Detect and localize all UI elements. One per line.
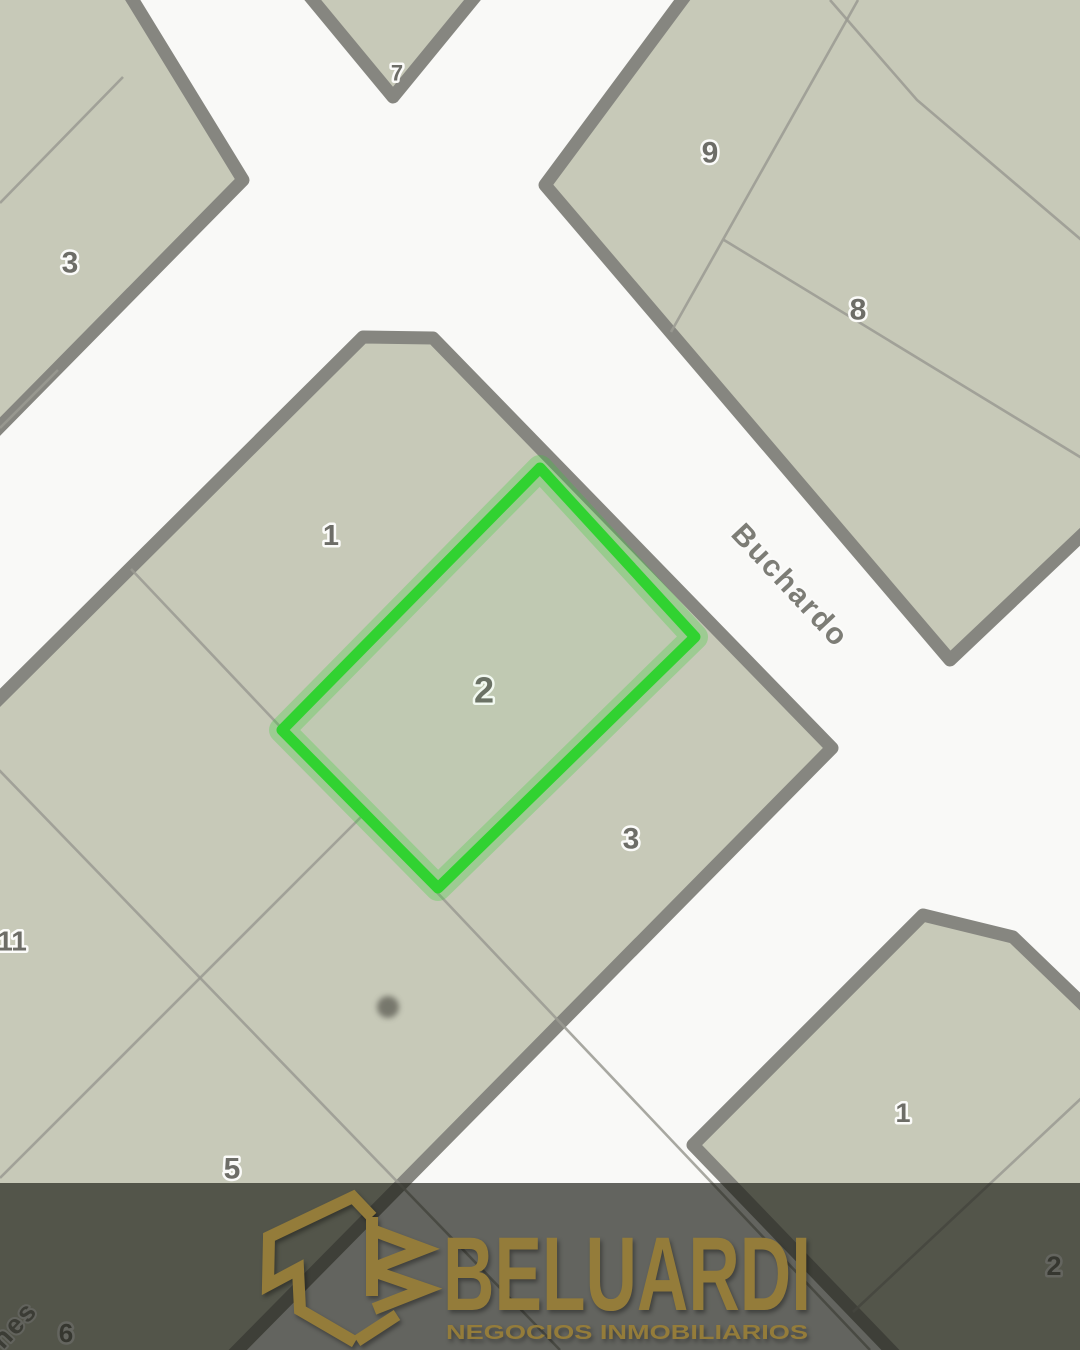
parcel-label-c-5: 5 [224, 1153, 241, 1186]
parcel-map: 3 7 9 8 1 2 3 11 5 6 1 2 Buchardo Jazmin… [0, 0, 1080, 1350]
brand-tagline: NEGOCIOS INMOBILIARIOS [446, 1321, 808, 1344]
parcel-label-tr-8: 8 [850, 294, 867, 327]
parcel-label-br-1: 1 [895, 1098, 910, 1128]
parcel-label-tr-9: 9 [702, 137, 719, 170]
listing-map-image: 3 7 9 8 1 2 3 11 5 6 1 2 Buchardo Jazmin… [0, 0, 1080, 1350]
jb-monogram-icon [268, 1197, 425, 1342]
parcel-label-c-3: 3 [623, 823, 640, 856]
parcel-label-tip-7: 7 [391, 61, 403, 86]
brand-logo: BELUARDI NEGOCIOS INMOBILIARIOS [250, 1188, 830, 1348]
brand-name: BELUARDI [443, 1216, 811, 1333]
parcel-label-c-1: 1 [323, 520, 339, 552]
tree-marker-icon [377, 996, 399, 1018]
parcel-label-tl-3: 3 [62, 247, 79, 280]
parcel-label-c-11: 11 [0, 926, 27, 957]
brand-banner-overlay: BELUARDI NEGOCIOS INMOBILIARIOS [0, 1183, 1080, 1350]
